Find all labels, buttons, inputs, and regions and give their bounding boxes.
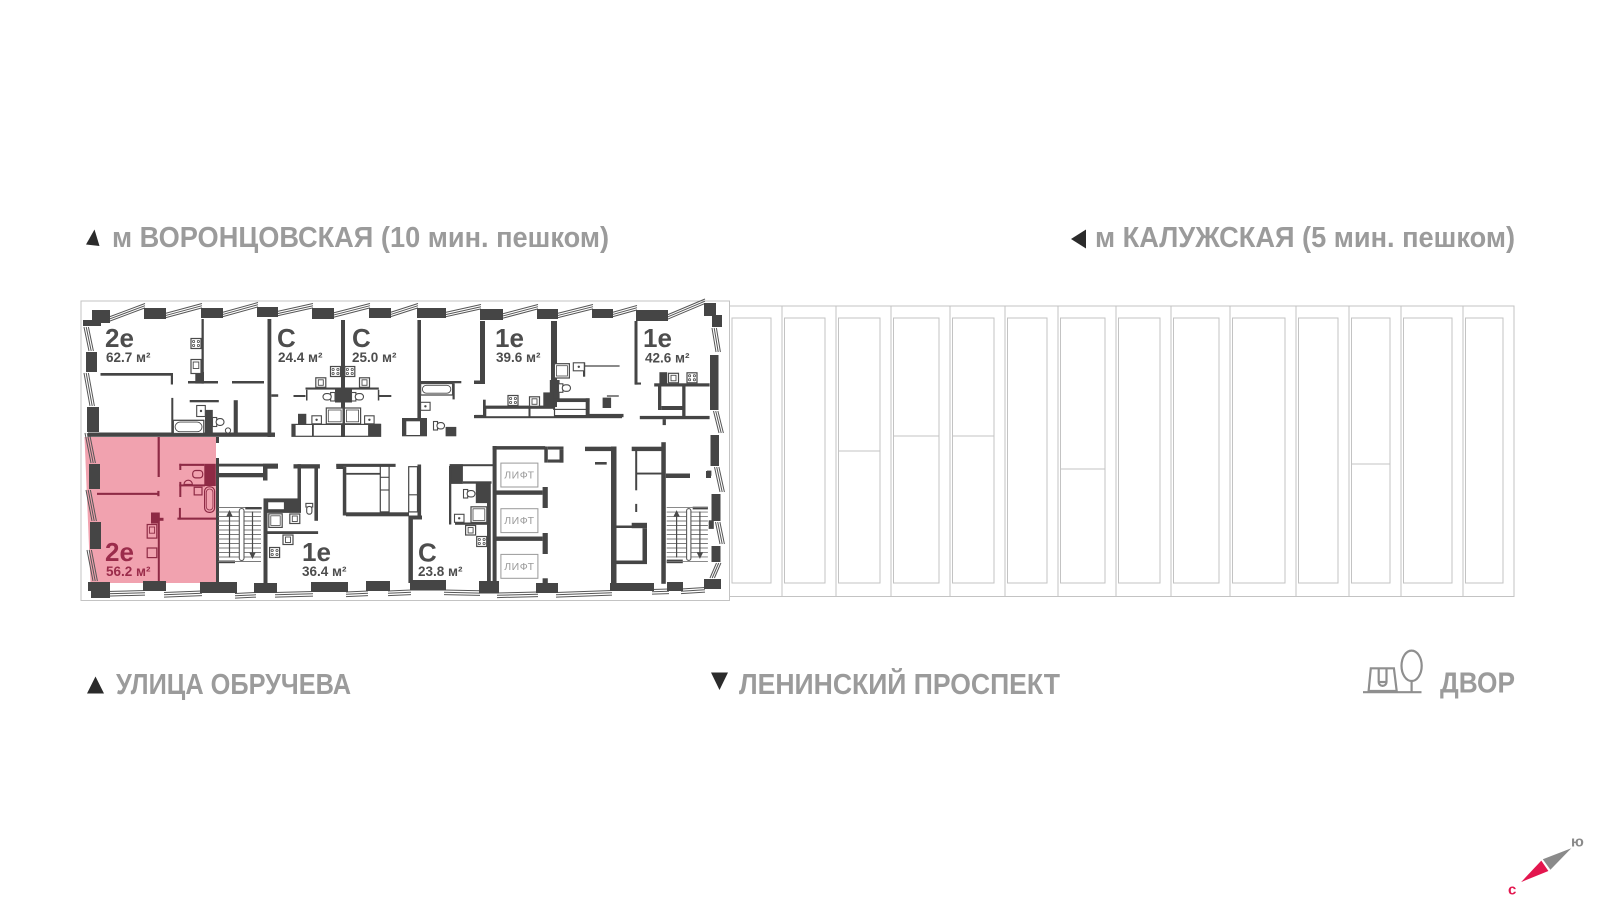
svg-text:1e: 1e [302,537,331,567]
svg-text:1e: 1e [643,323,672,353]
svg-text:36.4 м²: 36.4 м² [302,564,347,579]
svg-text:C: C [277,323,296,353]
svg-text:39.6 м²: 39.6 м² [496,350,541,365]
svg-text:с: с [1508,882,1516,899]
svg-text:25.0 м²: 25.0 м² [352,350,397,365]
svg-text:м КАЛУЖСКАЯ (5 мин. пешком): м КАЛУЖСКАЯ (5 мин. пешком) [1095,222,1515,254]
svg-text:ЛИФТ: ЛИФТ [504,561,534,573]
svg-text:2e: 2e [105,323,134,353]
svg-text:ДВОР: ДВОР [1440,668,1515,700]
svg-text:ЛИФТ: ЛИФТ [504,515,534,527]
svg-text:23.8 м²: 23.8 м² [418,564,463,579]
svg-text:42.6 м²: 42.6 м² [645,351,690,366]
svg-text:ю: ю [1571,834,1584,851]
svg-text:м ВОРОНЦОВСКАЯ (10 мин. пешко: м ВОРОНЦОВСКАЯ (10 мин. пешком) [112,222,609,254]
svg-text:62.7 м²: 62.7 м² [106,350,151,365]
svg-text:ЛЕНИНСКИЙ ПРОСПЕКТ: ЛЕНИНСКИЙ ПРОСПЕКТ [739,667,1060,701]
svg-text:УЛИЦА ОБРУЧЕВА: УЛИЦА ОБРУЧЕВА [116,669,351,701]
svg-text:56.2 м²: 56.2 м² [106,564,151,579]
svg-text:C: C [352,323,371,353]
svg-text:1e: 1e [495,323,524,353]
svg-text:C: C [418,538,437,568]
svg-text:2e: 2e [105,537,134,567]
svg-text:24.4 м²: 24.4 м² [278,350,323,365]
svg-text:ЛИФТ: ЛИФТ [504,470,534,482]
